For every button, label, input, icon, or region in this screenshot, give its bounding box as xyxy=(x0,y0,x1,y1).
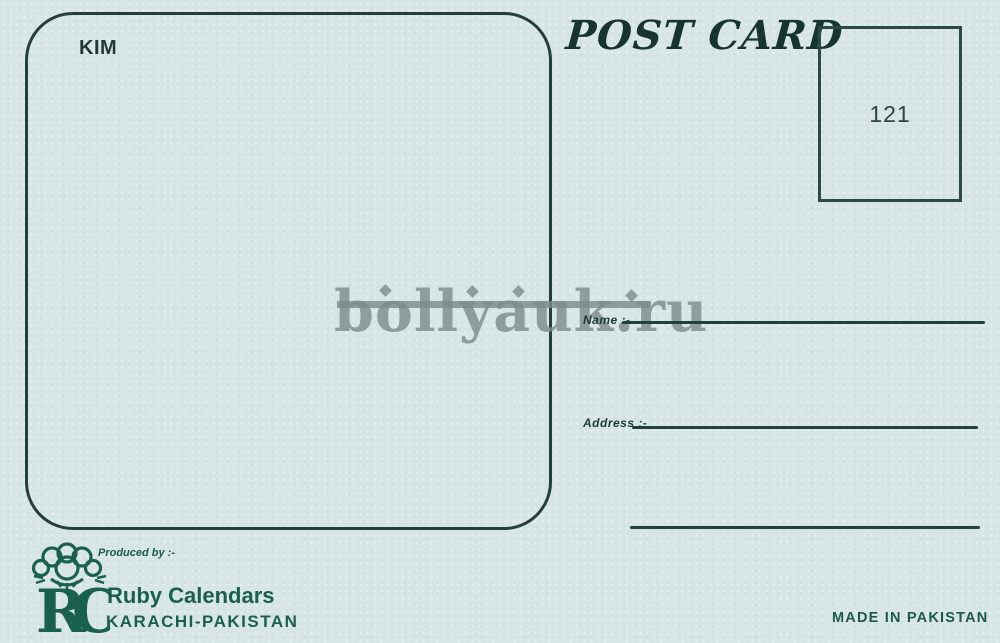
producer-company: Ruby Calendars xyxy=(107,583,275,609)
watermark-diamond-accent xyxy=(625,289,638,302)
stamp-box: 121 xyxy=(818,26,962,202)
photo-caption: KIM xyxy=(79,37,117,60)
producer-city: KARACHI-PAKISTAN xyxy=(106,612,298,632)
message-area: KIM xyxy=(25,12,552,530)
made-in-label: MADE IN PAKISTAN xyxy=(832,610,988,626)
ruby-calendars-flower-logo-icon: RC xyxy=(30,540,110,640)
postcard-back: KIM POST CARD 121 bollyauk.ru Name :- Ad… xyxy=(0,0,1000,643)
name-label: Name :- xyxy=(583,313,631,327)
address-line xyxy=(632,426,978,429)
address-extra-line xyxy=(630,526,980,529)
postcard-title: POST CARD xyxy=(564,12,845,59)
name-line xyxy=(622,321,985,324)
monogram: RC xyxy=(36,577,110,640)
stamp-number: 121 xyxy=(869,101,910,128)
